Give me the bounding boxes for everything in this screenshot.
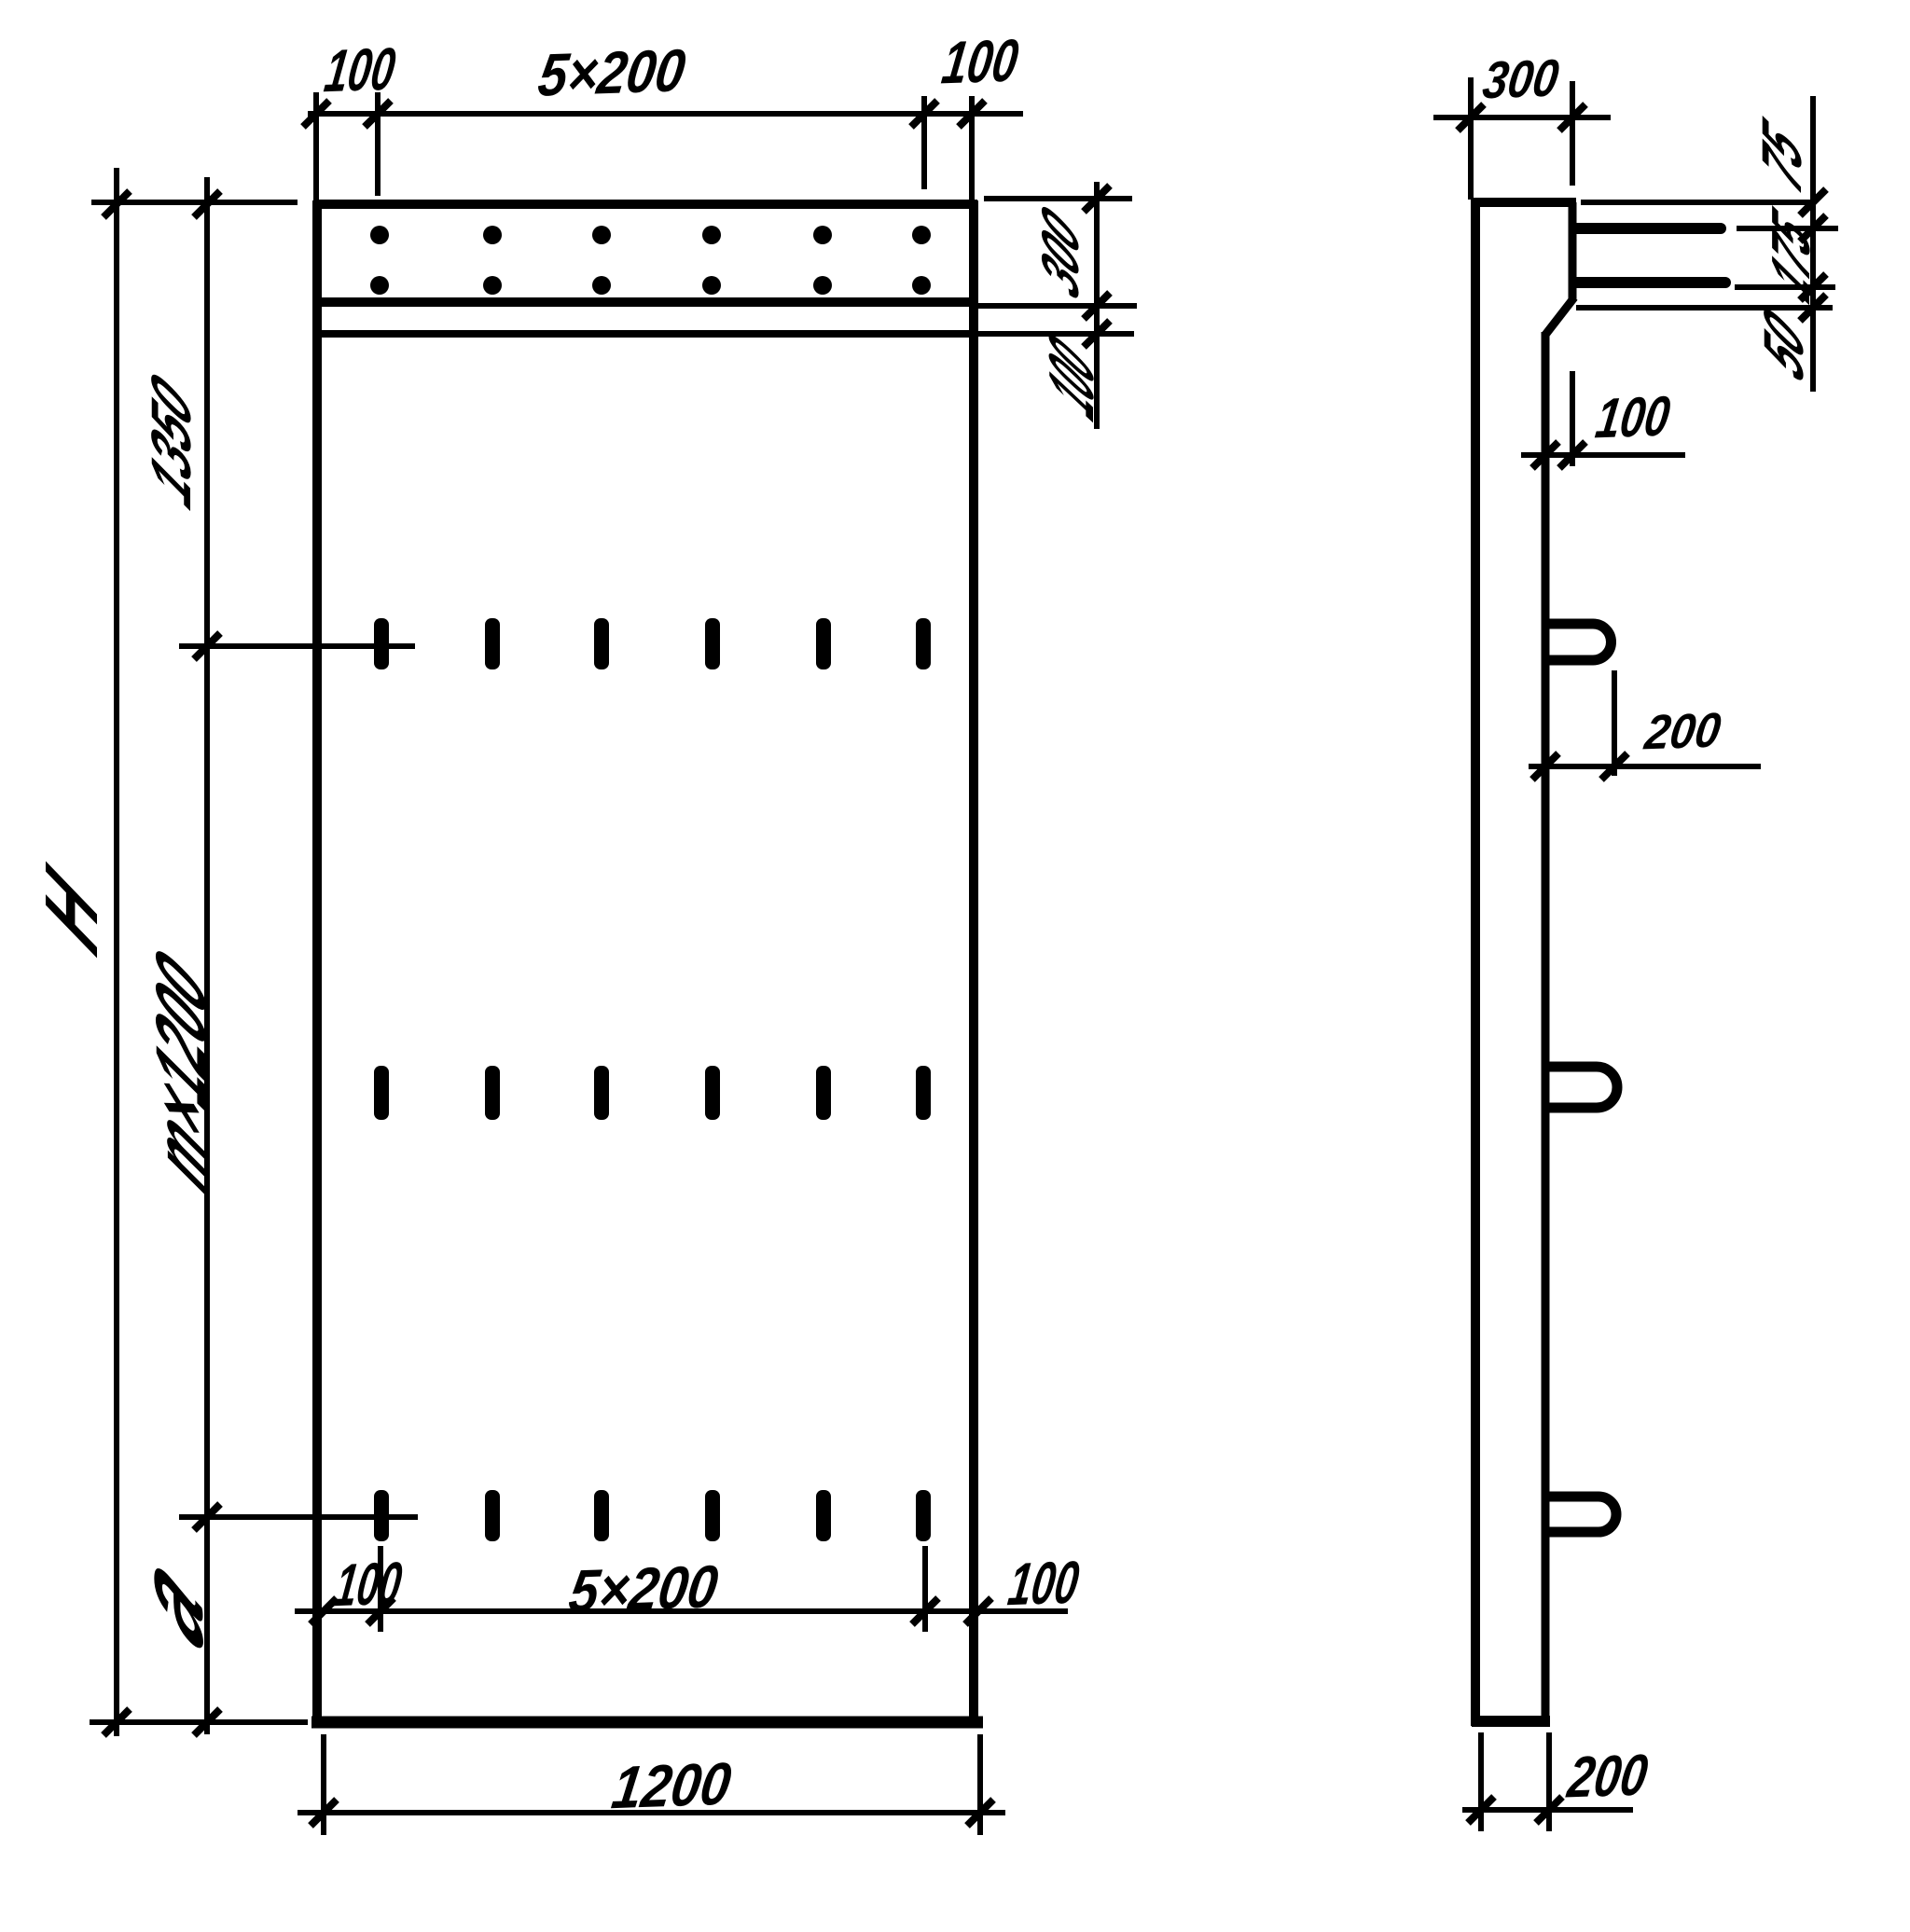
svg-text:100: 100	[331, 1550, 406, 1619]
svg-text:200: 200	[1563, 1743, 1652, 1811]
svg-text:100: 100	[321, 35, 399, 104]
svg-text:100: 100	[938, 27, 1022, 97]
svg-text:100: 100	[1592, 384, 1674, 450]
svg-text:5×200: 5×200	[534, 36, 689, 108]
svg-text:5×200: 5×200	[565, 1552, 722, 1624]
svg-text:100: 100	[1004, 1549, 1083, 1618]
svg-text:1200: 1200	[608, 1750, 735, 1821]
svg-text:300: 300	[1479, 48, 1562, 110]
svg-text:200: 200	[1640, 704, 1723, 761]
